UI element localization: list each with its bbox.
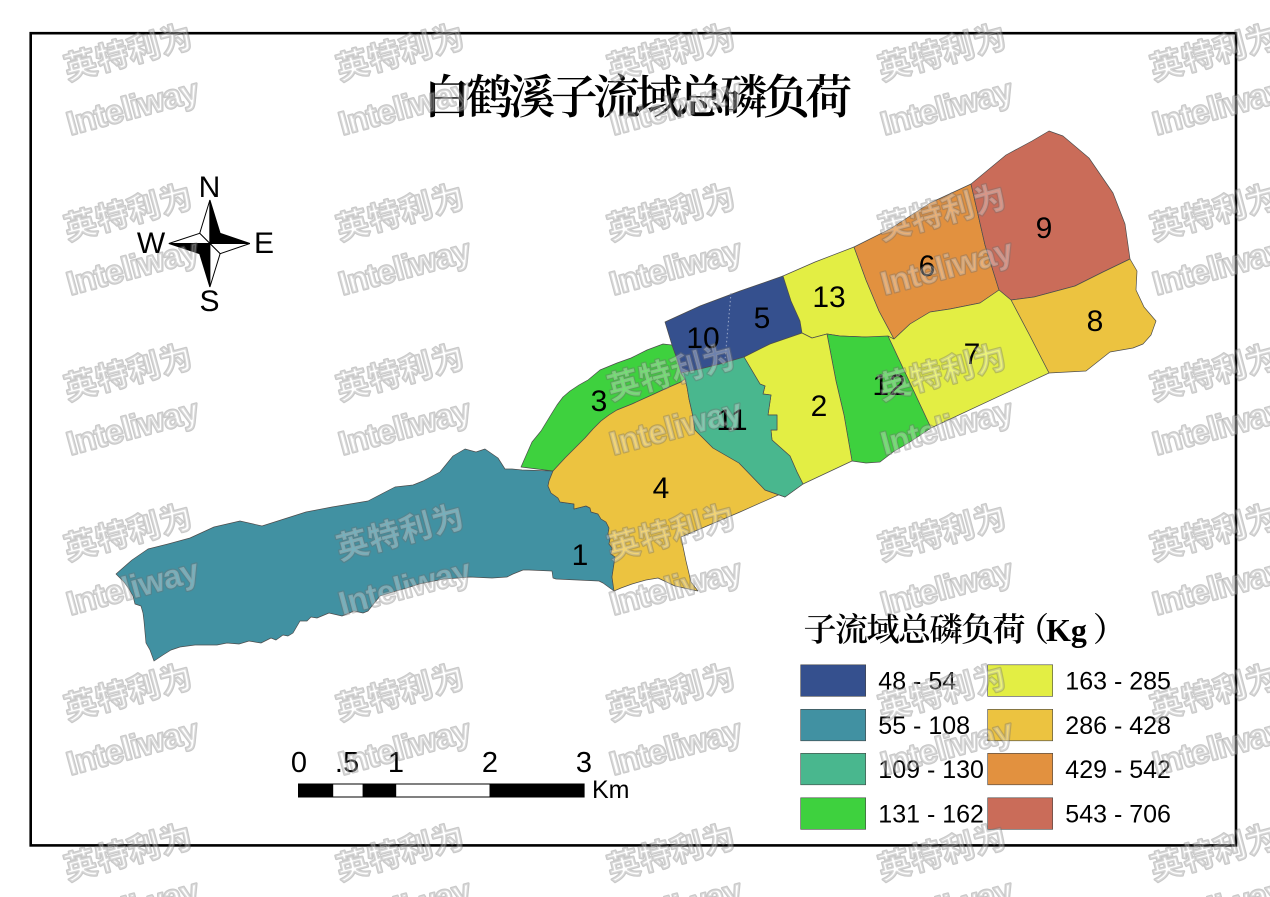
svg-text:286 - 428: 286 - 428 [1065,712,1171,740]
svg-text:3: 3 [591,385,608,418]
svg-text:2: 2 [811,390,828,423]
svg-text:2: 2 [482,747,498,779]
svg-text:N: N [199,171,221,204]
svg-text:E: E [254,227,274,260]
svg-text:8: 8 [1087,305,1104,338]
svg-text:Kg: Kg [1046,612,1087,648]
svg-text:3: 3 [576,747,592,779]
svg-text:4: 4 [653,472,670,505]
svg-text:Km: Km [592,776,630,804]
svg-text:13: 13 [812,281,845,314]
svg-text:9: 9 [1036,212,1053,245]
svg-text:131 - 162: 131 - 162 [878,800,984,828]
svg-text:543 - 706: 543 - 706 [1065,800,1171,828]
svg-text:0: 0 [291,747,307,779]
svg-text:5: 5 [754,302,771,335]
svg-text:1: 1 [572,539,589,572]
svg-text:S: S [199,285,219,318]
